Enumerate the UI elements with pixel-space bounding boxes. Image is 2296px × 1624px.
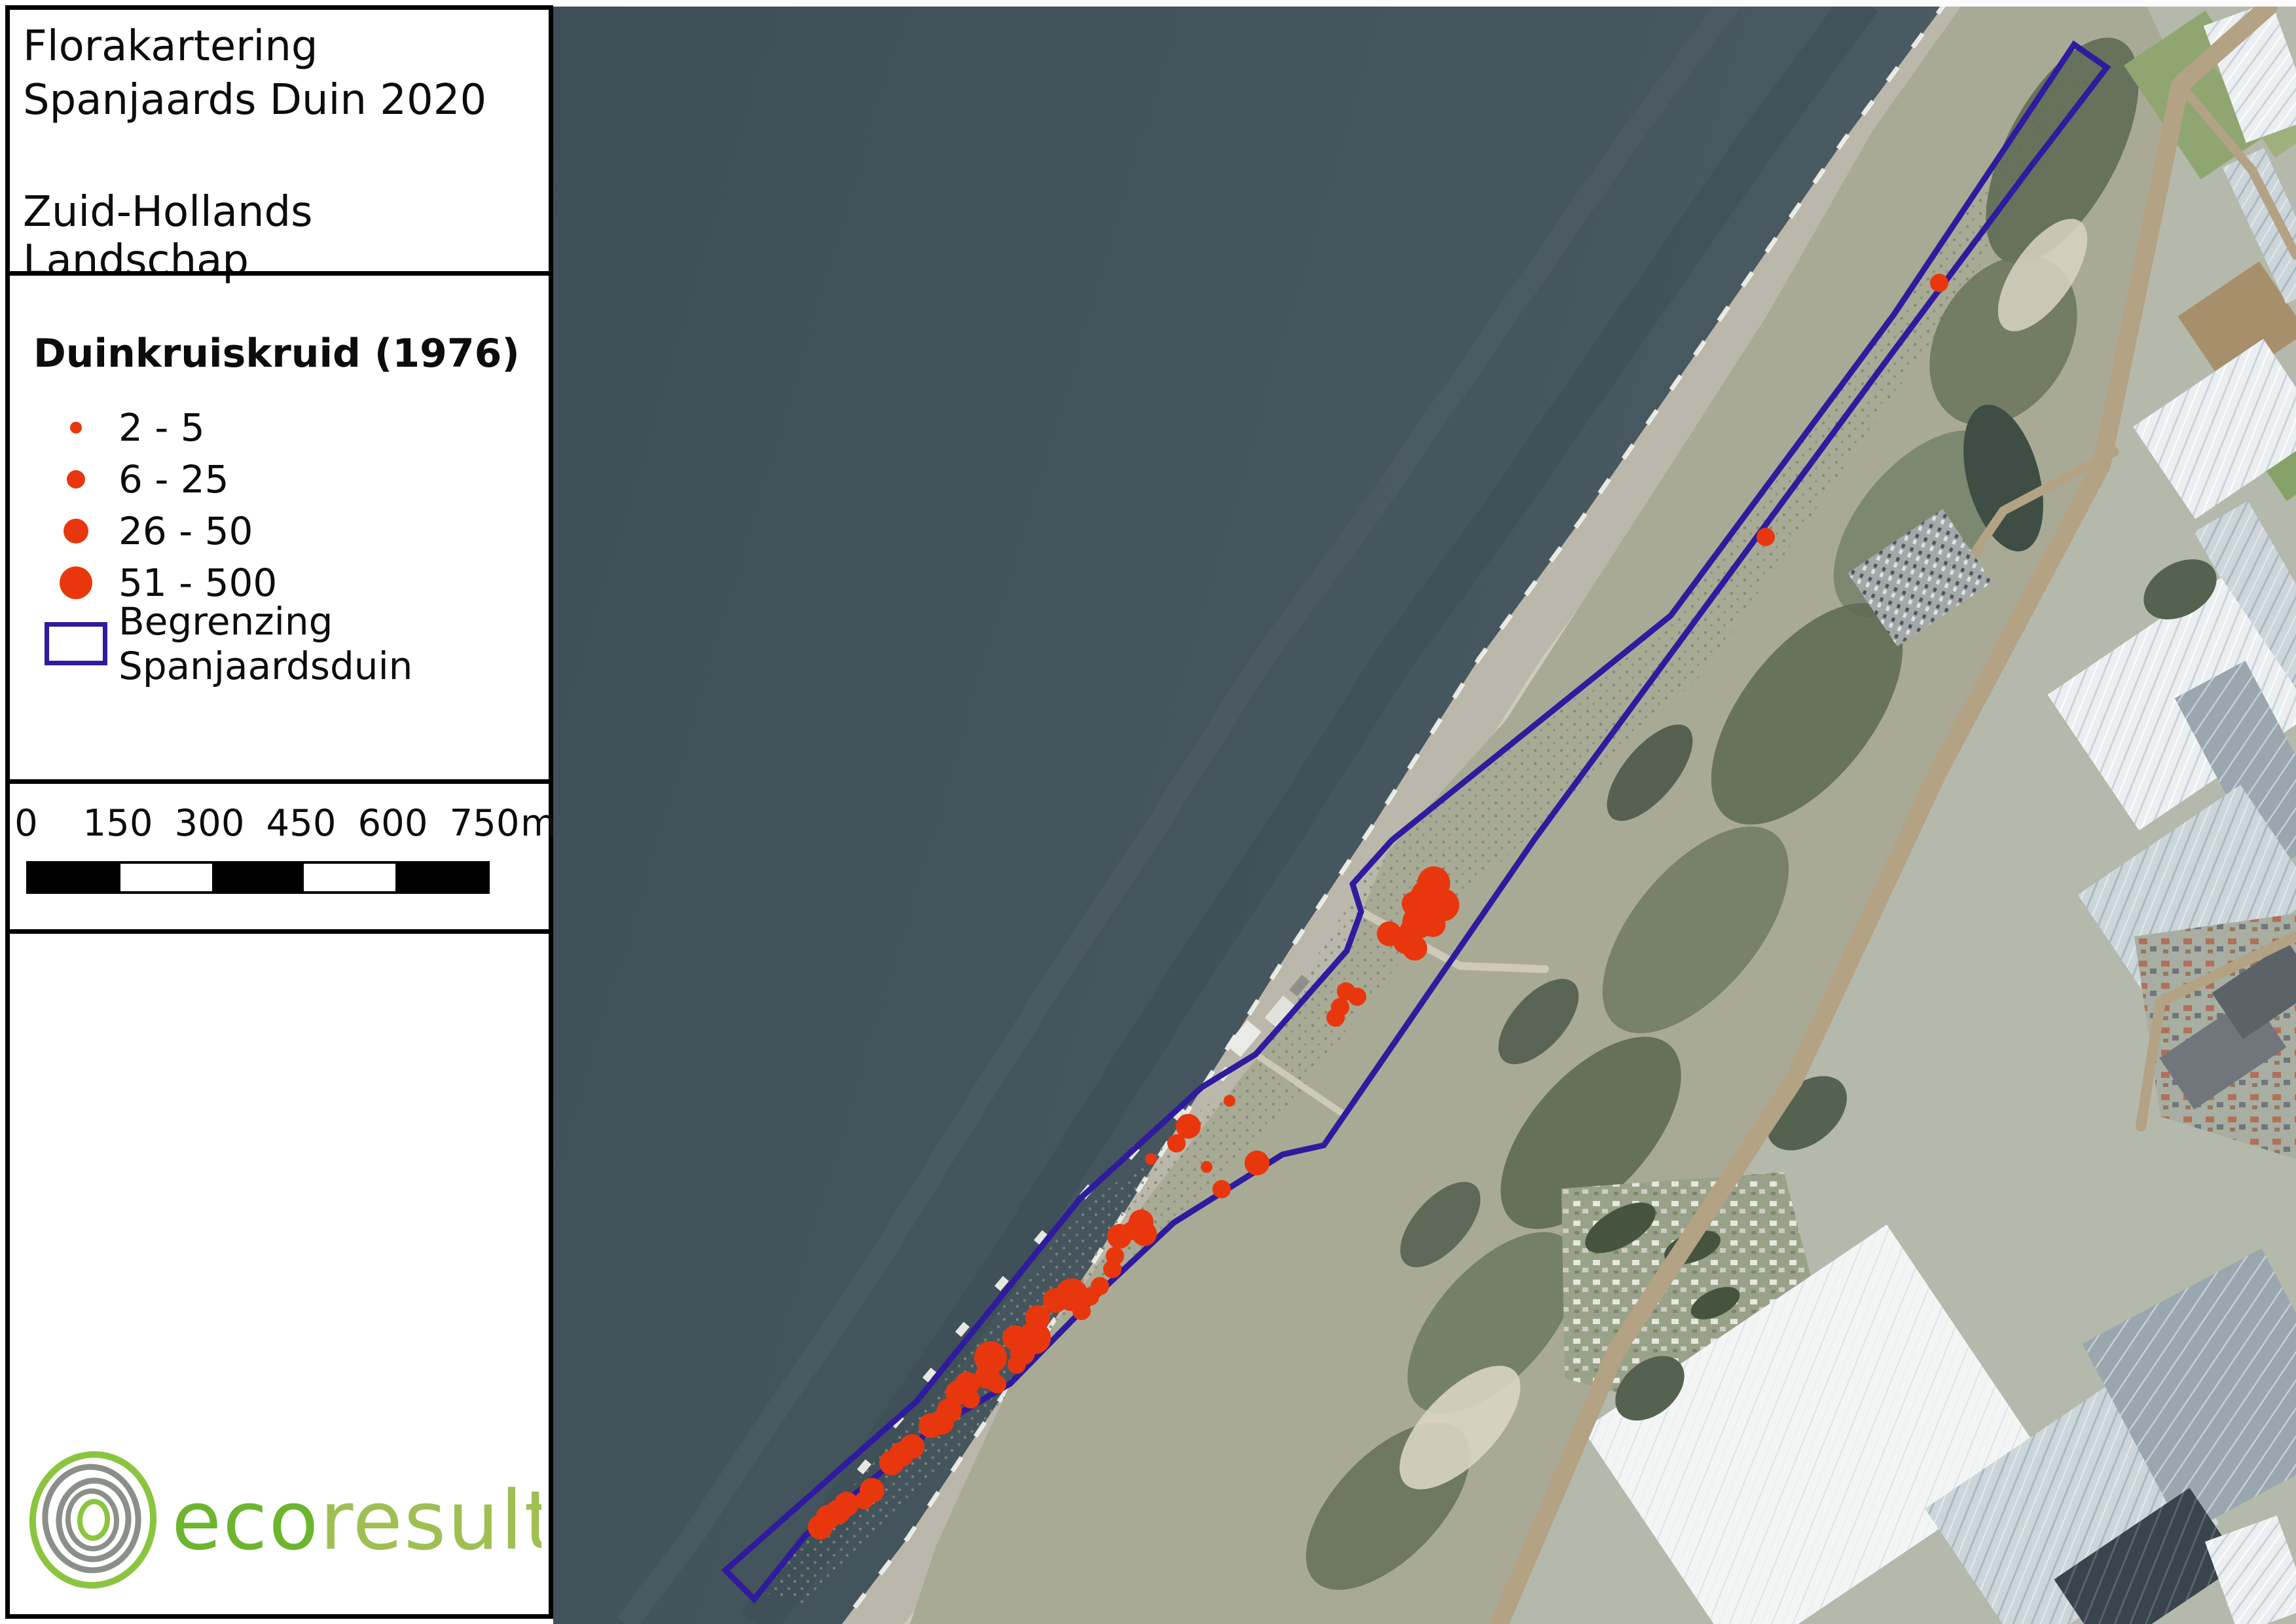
flora-marker — [1132, 1221, 1157, 1246]
size-class-dot-icon — [64, 519, 88, 544]
legend-item-label: 6 - 25 — [118, 457, 229, 502]
scalebar-segment — [212, 864, 304, 891]
scalebar-block: 0150300450600750 m — [10, 779, 549, 929]
flora-marker — [988, 1375, 1006, 1393]
flora-marker — [1377, 921, 1402, 946]
scalebar-tick-label: 0 — [14, 802, 38, 845]
scalebar-tick-label: 150 — [83, 802, 153, 845]
legend-block: Duinkruiskruid (1976) 2 - 5 6 - 25 26 - … — [10, 271, 549, 779]
boundary-swatch-icon — [45, 622, 107, 665]
flora-marker — [1348, 987, 1366, 1006]
scalebar-segment — [29, 864, 120, 891]
flora-marker — [962, 1390, 980, 1409]
legend-item-label: 51 - 500 — [118, 561, 277, 605]
flora-marker — [1930, 274, 1948, 292]
size-class-dot-icon — [70, 422, 82, 434]
sidebar: Florakartering Spanjaards Duin 2020 Zuid… — [5, 5, 553, 1619]
flora-marker — [1107, 1224, 1132, 1249]
legend-item-class2: 6 - 25 — [33, 453, 543, 505]
scalebar-segment — [395, 864, 487, 891]
bottom-block: ecoresult — [10, 929, 549, 1614]
size-class-dot-icon — [60, 566, 92, 599]
scalebar-unit: m — [520, 802, 556, 845]
photo-margin — [553, 0, 2296, 7]
ecoresult-logo: ecoresult — [24, 1443, 541, 1600]
flora-marker — [1201, 1161, 1212, 1173]
legend-item-class3: 26 - 50 — [33, 505, 543, 557]
flora-marker — [1145, 1153, 1157, 1165]
logo-rings-icon — [25, 1448, 160, 1593]
legend-item-label: 26 - 50 — [118, 509, 253, 553]
scalebar-segment — [120, 864, 212, 891]
map-subtitle: Zuid-Hollands Landschap — [23, 188, 543, 285]
map-sheet: Florakartering Spanjaards Duin 2020 Zuid… — [0, 0, 2296, 1624]
flora-marker — [1224, 1095, 1235, 1107]
scalebar-tick-label: 600 — [358, 802, 428, 845]
flora-marker — [1402, 936, 1427, 961]
flora-marker — [1326, 1008, 1345, 1027]
title-block: Florakartering Spanjaards Duin 2020 Zuid… — [10, 10, 549, 271]
flora-marker — [1421, 912, 1446, 937]
map-viewport — [553, 0, 2296, 1624]
scalebar-tick-label: 750 — [450, 802, 520, 845]
scalebar-segment — [304, 864, 395, 891]
flora-marker — [1167, 1134, 1186, 1153]
legend-item-label: 2 - 5 — [118, 405, 205, 450]
scalebar-tick-label: 450 — [266, 802, 337, 845]
flora-marker — [879, 1450, 904, 1475]
legend-item-class1: 2 - 5 — [33, 401, 543, 453]
map-title-line2: Spanjaards Duin 2020 — [23, 74, 543, 128]
legend-item-label: Begrenzing Spanjaardsduin — [118, 599, 543, 688]
flora-marker — [1757, 528, 1775, 546]
logo-text: ecoresult — [172, 1474, 541, 1568]
flora-marker — [808, 1515, 833, 1540]
map-title-line1: Florakartering — [23, 20, 543, 74]
legend-item-boundary: Begrenzing Spanjaardsduin — [33, 612, 543, 675]
flora-marker — [1212, 1180, 1231, 1198]
size-class-dot-icon — [67, 470, 85, 489]
flora-marker — [1008, 1356, 1026, 1374]
flora-marker — [1245, 1151, 1269, 1175]
flora-marker — [919, 1413, 943, 1438]
legend-title: Duinkruiskruid (1976) — [33, 331, 543, 377]
scalebar-tick-label: 300 — [175, 802, 245, 845]
scalebar — [26, 861, 490, 894]
flora-marker — [1103, 1260, 1121, 1278]
aerial-map — [553, 0, 2296, 1624]
